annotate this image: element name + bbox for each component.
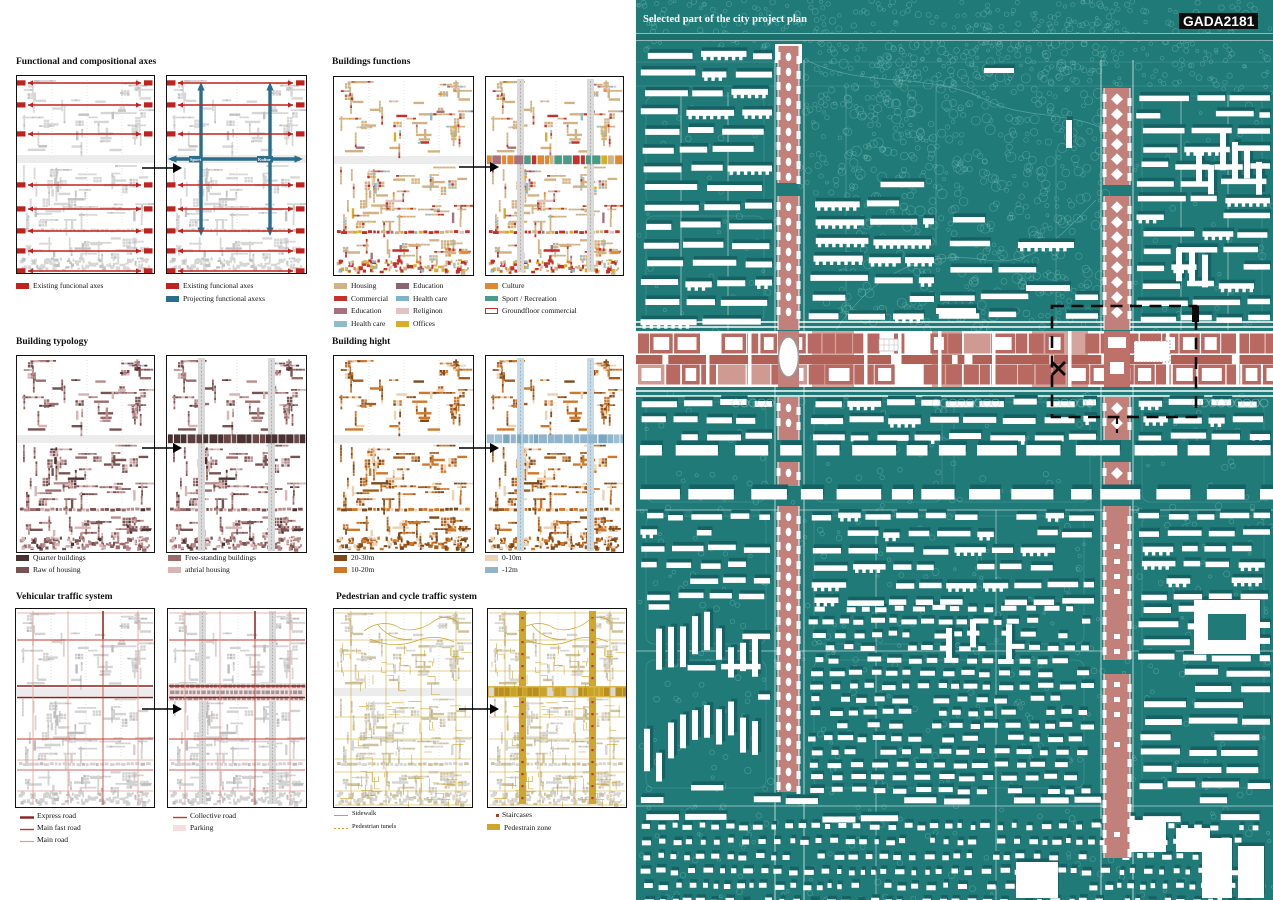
svg-text:Selected part of the city proj: Selected part of the city project plan xyxy=(643,14,807,25)
svg-text:Kultur: Kultur xyxy=(258,157,271,162)
svg-text:GADA2181: GADA2181 xyxy=(1183,14,1255,29)
svg-text:Sport: Sport xyxy=(190,157,201,162)
